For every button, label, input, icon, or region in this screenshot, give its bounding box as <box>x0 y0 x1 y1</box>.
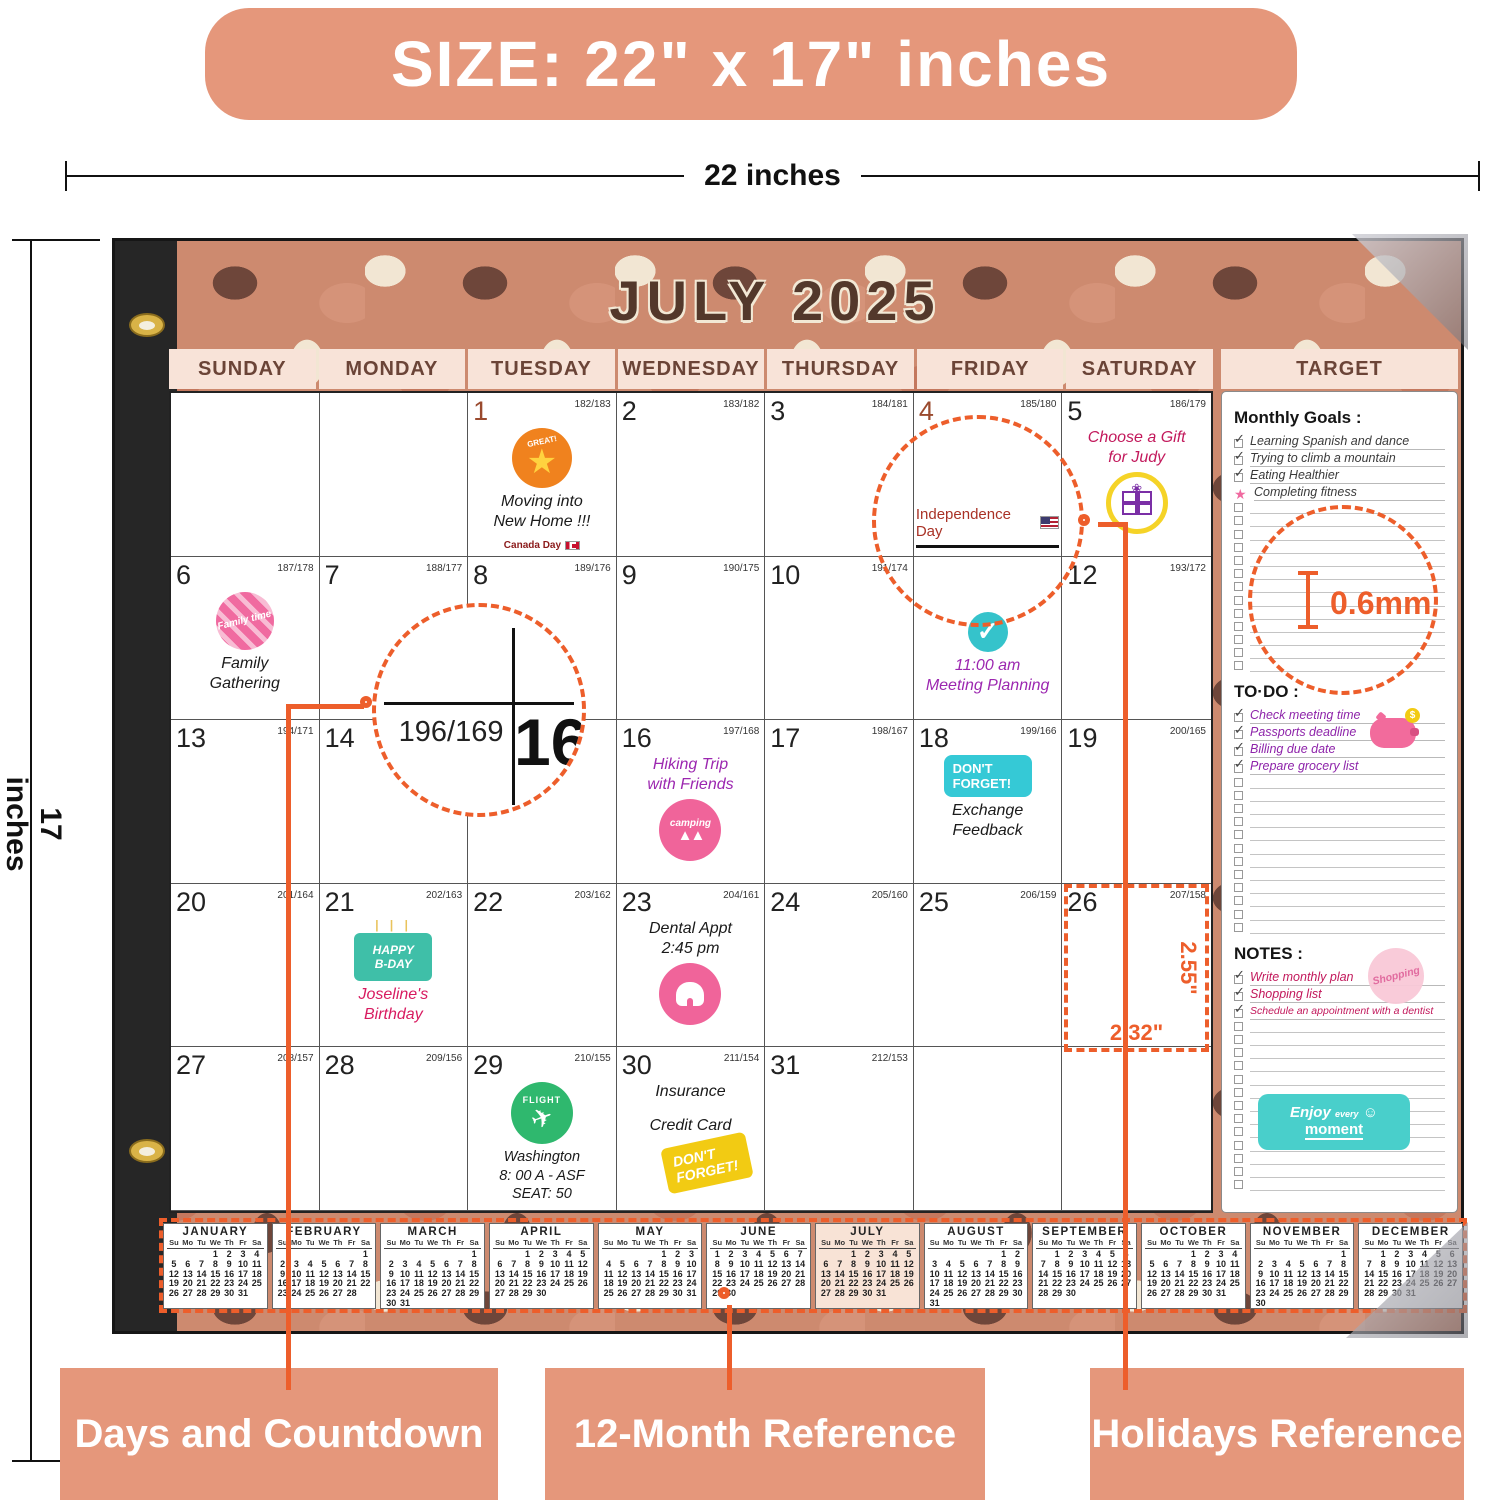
weekday-header-row: SUNDAYMONDAYTUESDAYWEDNESDAYTHURSDAYFRID… <box>169 349 1213 389</box>
mini-month-days: 1234567891011121314151617181920212223242… <box>819 1250 916 1299</box>
mini-month-title: DECEMBER <box>1362 1226 1459 1238</box>
calendar-cell: 30211/154InsuranceCredit CardDON'TFORGET… <box>617 1047 766 1211</box>
checkbox-icon <box>1234 530 1243 539</box>
mini-month-dow: SuMoTuWeThFrSa <box>1036 1238 1133 1249</box>
cell-measure-box: 2.55" 2.32" <box>1064 884 1209 1052</box>
mini-month-title: OCTOBER <box>1145 1226 1242 1238</box>
weekday-header: MONDAY <box>319 349 466 389</box>
checkbox-icon <box>1234 1075 1243 1084</box>
connector-dot <box>1078 514 1090 526</box>
checklist-item: Prepare grocery list <box>1234 758 1445 775</box>
checkbox-icon <box>1234 609 1243 618</box>
countdown: 182/183 <box>575 399 611 410</box>
checkbox-icon <box>1234 923 1243 932</box>
checked-checkbox-icon <box>1234 439 1243 448</box>
countdown: 202/163 <box>426 890 462 901</box>
countdown: 184/181 <box>872 399 908 410</box>
dont-forget-sticker: DON'TFORGET! <box>944 755 1032 797</box>
cell-note: ExchangeFeedback <box>952 801 1023 841</box>
checkbox-icon <box>1234 1048 1243 1057</box>
checkbox-icon <box>1234 844 1243 853</box>
mini-month-title: MAY <box>602 1226 699 1238</box>
mini-month-days: 1234567891011121314151617181920212223242… <box>384 1250 481 1309</box>
date-number: 3 <box>770 396 785 426</box>
mini-month-days: 1234567891011121314151617181920212223242… <box>1145 1250 1242 1299</box>
mini-month-dow: SuMoTuWeThFrSa <box>710 1238 807 1249</box>
connector-line-days-countdown <box>286 704 291 1390</box>
countdown: 197/168 <box>723 726 759 737</box>
checkbox-icon <box>1234 1154 1243 1163</box>
countdown: 189/176 <box>575 563 611 574</box>
empty-checklist-row <box>1234 1020 1445 1033</box>
mini-month-days: 1234567891011121314151617181920212223242… <box>602 1250 699 1299</box>
binding-strip <box>115 241 177 1331</box>
holiday-highlight-circle <box>872 415 1084 627</box>
date-number: 20 <box>176 887 206 917</box>
countdown: 208/157 <box>277 1053 313 1064</box>
mini-month: SEPTEMBERSuMoTuWeThFrSa12345678910111213… <box>1032 1223 1137 1309</box>
countdown: 193/172 <box>1170 563 1206 574</box>
callout-month-reference: 12-Month Reference <box>545 1368 985 1500</box>
weekday-header: SATURDAY <box>1066 349 1213 389</box>
checked-checkbox-icon <box>1234 975 1243 984</box>
cell-note: Choose a Giftfor Judy <box>1088 428 1186 468</box>
mini-month-title: JANUARY <box>167 1226 264 1238</box>
checkbox-icon <box>1234 503 1243 512</box>
calendar-cell: 21202/163HAPPYB-DAYJoseline'sBirthday <box>320 884 469 1048</box>
mini-month: NOVEMBERSuMoTuWeThFrSa123456789101112131… <box>1250 1223 1355 1309</box>
checked-checkbox-icon <box>1234 992 1243 1001</box>
checkbox-icon <box>1234 778 1243 787</box>
weekday-header: THURSDAY <box>767 349 914 389</box>
checkbox-icon <box>1234 1088 1243 1097</box>
checked-checkbox-icon <box>1234 456 1243 465</box>
countdown: 188/177 <box>426 563 462 574</box>
countdown: 183/182 <box>723 399 759 410</box>
checked-checkbox-icon <box>1234 747 1243 756</box>
checkbox-icon <box>1234 1127 1243 1136</box>
calendar-cell: 19200/165 <box>1062 720 1211 884</box>
cell-note: Dental Appt2:45 pm <box>649 919 732 959</box>
empty-checklist-row <box>1234 907 1445 920</box>
checkbox-icon <box>1234 596 1243 605</box>
star-icon: ★ <box>1234 488 1247 501</box>
magnified-date: 16 <box>514 704 586 780</box>
mini-month-dow: SuMoTuWeThFrSa <box>384 1238 481 1249</box>
checkbox-icon <box>1234 1141 1243 1150</box>
birthday-cake-sticker: HAPPYB-DAY <box>354 933 432 981</box>
checkbox-icon <box>1234 817 1243 826</box>
countdown: 203/162 <box>575 890 611 901</box>
empty-checklist-row <box>1234 828 1445 841</box>
calendar-cell: 5186/179Choose a Giftfor Judy❀ <box>1062 393 1211 557</box>
connector-line-reference <box>727 1305 732 1390</box>
date-number: 1 <box>473 396 488 426</box>
checkbox-icon <box>1234 516 1243 525</box>
mini-month-days: 1234567891011121314151617181920212223242… <box>493 1250 590 1299</box>
countdown: 187/178 <box>277 563 313 574</box>
mini-month: APRILSuMoTuWeThFrSa123456789101112131415… <box>489 1223 594 1309</box>
calendar-cell: 13194/171 <box>171 720 320 884</box>
date-number: 24 <box>770 887 800 917</box>
checkbox-icon <box>1234 1035 1243 1044</box>
mini-month: OCTOBERSuMoTuWeThFrSa1234567891011121314… <box>1141 1223 1246 1309</box>
countdown: 210/155 <box>575 1053 611 1064</box>
date-number: 28 <box>325 1050 355 1080</box>
empty-checklist-row <box>1234 855 1445 868</box>
mini-month: MARCHSuMoTuWeThFrSa123456789101112131415… <box>380 1223 485 1309</box>
empty-checklist-row <box>1234 802 1445 815</box>
mini-month-title: JUNE <box>710 1226 807 1238</box>
twelve-month-reference-strip: JANUARYSuMoTuWeThFrSa1234567891011121314… <box>163 1223 1463 1309</box>
mini-month: JULYSuMoTuWeThFrSa1234567891011121314151… <box>815 1223 920 1309</box>
countdown: 199/166 <box>1020 726 1056 737</box>
weekday-header: FRIDAY <box>917 349 1064 389</box>
date-number: 19 <box>1067 723 1097 753</box>
checked-checkbox-icon <box>1234 764 1243 773</box>
checkbox-icon <box>1234 910 1243 919</box>
callout-days-countdown: Days and Countdown <box>60 1368 498 1500</box>
checkbox-icon <box>1234 1180 1243 1189</box>
mini-month: AUGUSTSuMoTuWeThFrSa12345678910111213141… <box>924 1223 1029 1309</box>
countdown: 211/154 <box>724 1053 759 1064</box>
mini-month-dow: SuMoTuWeThFrSa <box>928 1238 1025 1249</box>
monthly-goals-title: Monthly Goals : <box>1234 408 1445 428</box>
mini-month-title: AUGUST <box>928 1226 1025 1238</box>
countdown: 200/165 <box>1170 726 1206 737</box>
canada-flag-icon <box>565 541 580 550</box>
date-number: 18 <box>919 723 949 753</box>
date-number: 14 <box>325 723 355 753</box>
date-number: 17 <box>770 723 800 753</box>
checkbox-icon <box>1234 804 1243 813</box>
weekday-header: WEDNESDAY <box>618 349 765 389</box>
mini-month-days: 1234567891011121314151617181920212223242… <box>1254 1250 1351 1309</box>
countdown: 209/156 <box>426 1053 462 1064</box>
calendar-cell: 28209/156 <box>320 1047 469 1211</box>
cell-note: Hiking Tripwith Friends <box>647 755 733 795</box>
checkbox-icon <box>1234 648 1243 657</box>
empty-checklist-row <box>1234 1152 1445 1165</box>
dimension-line <box>67 175 684 177</box>
mini-month-days: 1234567891011121314151617181920212223242… <box>1036 1250 1133 1299</box>
cell-note: 11:00 amMeeting Planning <box>926 656 1050 696</box>
mini-month-title: NOVEMBER <box>1254 1226 1351 1238</box>
mini-month-days: 1234567891011121314151617181920212223242… <box>928 1250 1025 1309</box>
checkbox-icon <box>1234 635 1243 644</box>
checked-checkbox-icon <box>1234 473 1243 482</box>
checkbox-icon <box>1234 569 1243 578</box>
checkbox-icon <box>1234 883 1243 892</box>
mini-month: MAYSuMoTuWeThFrSa12345678910111213141516… <box>598 1223 703 1309</box>
checkbox-icon <box>1234 582 1243 591</box>
date-number: 23 <box>622 887 652 917</box>
canada-day-label: Canada Day <box>468 540 616 551</box>
calendar-cell: 6187/178Family timeFamilyGathering <box>171 557 320 721</box>
weekday-header: SUNDAY <box>169 349 316 389</box>
countdown: 204/161 <box>723 890 759 901</box>
countdown: 206/159 <box>1020 890 1056 901</box>
checkbox-icon <box>1234 857 1243 866</box>
countdown: 194/171 <box>277 726 313 737</box>
calendar-cell: 27208/157 <box>171 1047 320 1211</box>
dimension-line <box>861 175 1478 177</box>
checkbox-icon <box>1234 1101 1243 1110</box>
checkbox-icon <box>1234 1022 1243 1031</box>
smiley-icon: ☺ <box>1363 1104 1378 1121</box>
date-number: 8 <box>473 560 488 590</box>
checkbox-icon <box>1234 556 1243 565</box>
checkbox-icon <box>1234 830 1243 839</box>
piggy-bank-sticker: $ <box>1370 710 1422 750</box>
cell-note: InsuranceCredit Card <box>650 1082 732 1136</box>
empty-checklist-row <box>1234 1072 1445 1085</box>
checkbox-icon <box>1234 896 1243 905</box>
date-number: 22 <box>473 887 503 917</box>
calendar-cell <box>171 393 320 557</box>
target-header: TARGET <box>1221 349 1458 389</box>
paper-thickness-circle: 0.6mm <box>1248 505 1438 695</box>
callout-holidays-reference: Holidays Reference <box>1090 1368 1464 1500</box>
countdown: 185/180 <box>1020 399 1056 410</box>
cell-height-value: 2.55" <box>1175 941 1201 994</box>
checkbox-icon <box>1234 622 1243 631</box>
countdown: 205/160 <box>872 890 908 901</box>
calendar-cell: 16197/168Hiking Tripwith Friendscamping▲… <box>617 720 766 884</box>
mini-month-title: JULY <box>819 1226 916 1238</box>
empty-checklist-row <box>1234 775 1445 788</box>
calendar-cell: 9190/175 <box>617 557 766 721</box>
empty-checklist-row <box>1234 1033 1445 1046</box>
cell-note: Joseline'sBirthday <box>358 985 428 1025</box>
empty-checklist-row <box>1234 868 1445 881</box>
mini-month-title: SEPTEMBER <box>1036 1226 1133 1238</box>
date-number: 31 <box>770 1050 800 1080</box>
magnified-countdown: 196/169 <box>399 716 504 749</box>
width-label: 22 inches <box>684 159 861 193</box>
empty-checklist-row <box>1234 1059 1445 1072</box>
empty-checklist-row <box>1234 1165 1445 1178</box>
grommet-top <box>129 313 165 337</box>
flight-sticker: FLIGHT✈ <box>511 1082 573 1144</box>
calendar-cell: 23204/161Dental Appt2:45 pm <box>617 884 766 1048</box>
mini-month-dow: SuMoTuWeThFrSa <box>1145 1238 1242 1249</box>
checked-checkbox-icon <box>1234 730 1243 739</box>
cell-width-value: 2.32" <box>1068 1020 1205 1046</box>
date-number: 4 <box>919 396 934 426</box>
checklist-item: ★Completing fitness <box>1234 484 1445 501</box>
tooth-sticker <box>659 963 721 1025</box>
date-number: 6 <box>176 560 191 590</box>
dont-forget-yellow-sticker: DON'TFORGET! <box>661 1132 755 1195</box>
date-number: 21 <box>325 887 355 917</box>
date-number: 10 <box>770 560 800 590</box>
empty-checklist-row <box>1234 1046 1445 1059</box>
cell-note: Moving intoNew Home !!! <box>493 492 590 532</box>
enjoy-moment-sticker: Enjoy every ☺ moment <box>1258 1094 1410 1150</box>
paper-thickness-value: 0.6mm <box>1330 585 1431 622</box>
calendar-cell: 22203/162 <box>468 884 617 1048</box>
checkbox-icon <box>1234 791 1243 800</box>
date-number: 16 <box>622 723 652 753</box>
thickness-gauge-icon <box>1306 571 1310 629</box>
cell-note: FamilyGathering <box>210 654 280 694</box>
mini-month-dow: SuMoTuWeThFrSa <box>167 1238 264 1249</box>
cell-note: Washington8: 00 A - ASFSEAT: 50 <box>499 1148 584 1202</box>
countdown-magnifier-circle: 196/169 16 <box>372 603 586 817</box>
connector-line-holidays <box>1123 522 1128 1390</box>
checklist-item: Learning Spanish and dance <box>1234 433 1445 450</box>
checkbox-icon <box>1234 1061 1243 1070</box>
grommet-bottom <box>129 1139 165 1163</box>
date-number: 30 <box>622 1050 652 1080</box>
connector-dot <box>718 1287 730 1299</box>
calendar-cell: 20201/164 <box>171 884 320 1048</box>
date-number: 7 <box>325 560 340 590</box>
calendar-cell: 29210/155FLIGHT✈Washington8: 00 A - ASFS… <box>468 1047 617 1211</box>
month-title: JULY 2025 <box>445 255 1105 347</box>
calendar-cell: 24205/160 <box>765 884 914 1048</box>
countdown: 201/164 <box>277 890 313 901</box>
countdown: 198/167 <box>872 726 908 737</box>
countdown: 186/179 <box>1170 399 1206 410</box>
family-time-sticker: Family time <box>216 592 274 650</box>
empty-checklist-row <box>1234 894 1445 907</box>
date-number: 25 <box>919 887 949 917</box>
checkbox-icon <box>1234 543 1243 552</box>
calendar-cell: 2183/182 <box>617 393 766 557</box>
calendar-cell: 1182/183GREAT!★Moving intoNew Home !!!Ca… <box>468 393 617 557</box>
date-number: 13 <box>176 723 206 753</box>
mini-month-title: MARCH <box>384 1226 481 1238</box>
weekday-header: TUESDAY <box>468 349 615 389</box>
checked-checkbox-icon <box>1234 713 1243 722</box>
mini-month-title: APRIL <box>493 1226 590 1238</box>
empty-checklist-row <box>1234 881 1445 894</box>
mini-month-dow: SuMoTuWeThFrSa <box>819 1238 916 1249</box>
empty-checklist-row <box>1234 841 1445 854</box>
great-star-sticker: GREAT!★ <box>512 428 572 488</box>
countdown: 190/175 <box>723 563 759 574</box>
date-number: 5 <box>1067 396 1082 426</box>
mini-month-dow: SuMoTuWeThFrSa <box>602 1238 699 1249</box>
shopping-sticker: Shopping <box>1368 948 1424 1004</box>
camping-sticker: camping▲▲ <box>659 799 721 861</box>
desk-calendar: JULY 2025 SUNDAYMONDAYTUESDAYWEDNESDAYTH… <box>112 238 1464 1334</box>
checklist-item: Schedule an appointment with a dentist <box>1234 1003 1445 1020</box>
checkbox-icon <box>1234 661 1243 670</box>
mini-month-days: 1234567891011121314151617181920212223242… <box>167 1250 264 1299</box>
empty-checklist-row <box>1234 789 1445 802</box>
checklist-item: Eating Healthier <box>1234 467 1445 484</box>
calendar-cell <box>914 1047 1063 1211</box>
coin-icon: $ <box>1405 708 1420 723</box>
calendar-cell: 31212/153 <box>765 1047 914 1211</box>
size-banner: SIZE: 22" x 17" inches <box>205 8 1297 120</box>
date-number: 29 <box>473 1050 503 1080</box>
countdown: 212/153 <box>872 1053 908 1064</box>
width-dimension: 22 inches <box>65 158 1480 194</box>
checklist-item: Trying to climb a mountain <box>1234 450 1445 467</box>
checkbox-icon <box>1234 1114 1243 1123</box>
calendar-cell: 25206/159 <box>914 884 1063 1048</box>
mini-month-dow: SuMoTuWeThFrSa <box>1254 1238 1351 1249</box>
mini-month: JANUARYSuMoTuWeThFrSa1234567891011121314… <box>163 1223 268 1309</box>
date-number: 9 <box>622 560 637 590</box>
calendar-cell: 12193/172 <box>1062 557 1211 721</box>
dimension-tick <box>1478 161 1480 191</box>
empty-checklist-row <box>1234 1178 1445 1191</box>
product-image: SIZE: 22" x 17" inches 22 inches 17 inch… <box>0 0 1494 1500</box>
calendar-cell: 18199/166DON'TFORGET!ExchangeFeedback <box>914 720 1063 884</box>
checked-checkbox-icon <box>1234 1009 1243 1018</box>
empty-checklist-row <box>1234 921 1445 934</box>
checkbox-icon <box>1234 1167 1243 1176</box>
checkbox-icon <box>1234 870 1243 879</box>
calendar-cell <box>320 393 469 557</box>
date-number: 2 <box>622 396 637 426</box>
dimension-tick <box>12 239 100 241</box>
calendar-cell: 17198/167 <box>765 720 914 884</box>
empty-checklist-row <box>1234 815 1445 828</box>
height-label: 17 inches <box>0 759 67 889</box>
mini-month-dow: SuMoTuWeThFrSa <box>493 1238 590 1249</box>
calendar-cell <box>1062 1047 1211 1211</box>
date-number: 27 <box>176 1050 206 1080</box>
connector-line <box>286 704 364 709</box>
